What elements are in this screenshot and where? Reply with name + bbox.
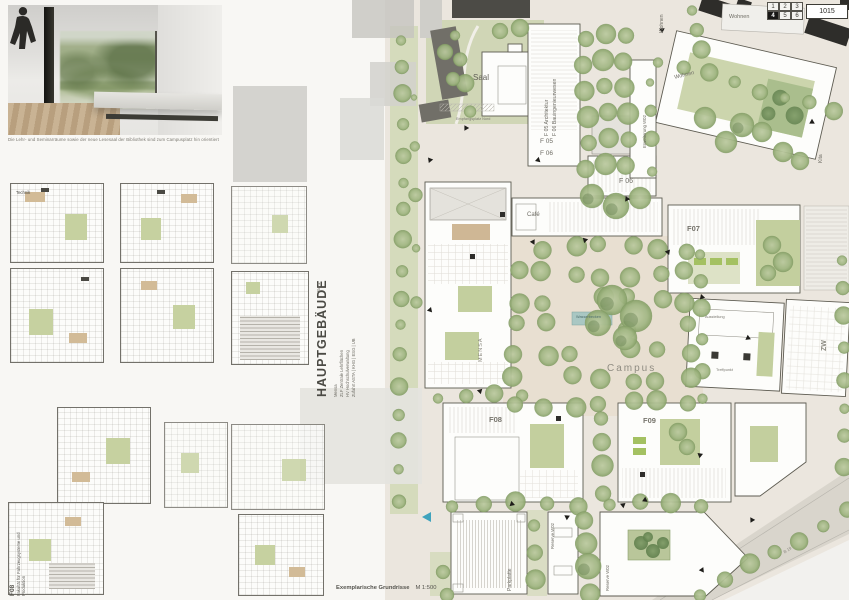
label-f06: F 06 (540, 151, 553, 158)
tree-icon (599, 103, 617, 121)
label-f05-architektur: F 05 Architektur (545, 100, 550, 136)
tree-icon (790, 532, 808, 550)
tree-icon (780, 93, 790, 103)
tree-icon (687, 6, 697, 16)
tree-icon (511, 19, 529, 37)
tree-icon (694, 499, 708, 513)
tree-icon (399, 178, 409, 188)
label-erweiterung-w02: Erweiterung W02 (643, 115, 647, 148)
tree-icon (695, 250, 705, 260)
tree-icon (657, 537, 669, 549)
presentation-board: Die Lehr- und Seminarräume sowie der neu… (0, 0, 849, 600)
render-caption: Die Lehr- und Seminarräume sowie der neu… (8, 137, 222, 142)
tree-icon (763, 236, 781, 254)
bottom-caption-text: Exemplarische Grundrisse (336, 585, 409, 591)
label-hauptgebaeude-phase: BA 1 (317, 282, 322, 292)
tree-icon (682, 344, 700, 362)
tree-icon (791, 152, 809, 170)
floor-plan-thumbnail (231, 424, 325, 510)
label-f07: F07 (687, 225, 700, 233)
tree-icon (693, 41, 711, 59)
tree-icon (593, 433, 611, 451)
floor-plan-thumbnail (120, 183, 214, 263)
f08-annotation: F08 Fakultät für Fahrzeugsysteme und Pro… (9, 514, 27, 596)
tree-icon (453, 53, 467, 67)
tree-icon (577, 160, 595, 178)
tree-icon (509, 315, 525, 331)
tree-icon (459, 389, 473, 403)
tree-icon (592, 49, 614, 71)
legend-cell: 6 (791, 11, 803, 20)
tree-icon (733, 123, 744, 134)
tree-icon (681, 368, 701, 388)
tree-icon (578, 31, 594, 47)
tree-icon (535, 399, 553, 417)
tree-icon (625, 392, 643, 410)
tree-icon (647, 167, 657, 177)
tree-icon (409, 188, 423, 202)
tree-icon (476, 496, 492, 512)
tree-icon (773, 252, 793, 272)
tree-icon (528, 520, 540, 532)
tree-icon (437, 44, 453, 60)
tree-icon (614, 78, 634, 98)
tree-icon (620, 267, 640, 287)
tree-icon (616, 336, 627, 347)
tree-icon (574, 56, 592, 74)
tree-icon (446, 501, 458, 513)
tree-icon (646, 79, 654, 87)
label-wohnen-top: Wohnen (729, 15, 749, 21)
tree-icon (621, 132, 637, 148)
label-reserve-w02-b: Reserve W02 (606, 565, 610, 591)
tree-icon (837, 256, 847, 266)
tree-icon (534, 241, 552, 259)
tree-icon (592, 455, 614, 477)
tree-icon (396, 36, 406, 46)
tree-icon (391, 432, 407, 448)
tree-icon (540, 497, 554, 511)
tree-icon (539, 346, 559, 366)
tree-icon (537, 313, 555, 331)
tree-icon (577, 106, 599, 128)
legend-cell: 3 (791, 2, 803, 11)
tree-icon (675, 262, 693, 280)
label-f06-block: F 06 (619, 178, 633, 185)
floor-plan-thumbnail (231, 186, 307, 264)
tree-icon (534, 296, 550, 312)
label-technik: Technik (16, 191, 30, 195)
tree-icon (760, 265, 776, 281)
label-parkplatte: Parkplatte (508, 568, 513, 591)
render-table (94, 92, 222, 111)
tree-icon (588, 320, 600, 332)
tree-icon (410, 141, 420, 151)
label-campus: Campus (607, 364, 656, 374)
tree-icon (590, 236, 606, 252)
tree-icon (397, 118, 409, 130)
interior-rendering (8, 5, 222, 135)
tree-icon (802, 95, 816, 109)
label-hauptgebaeude-line: ZLF Zentrale Lehrflächen (340, 350, 344, 397)
tree-icon (394, 230, 412, 248)
page-index: 123456 1015 (767, 2, 848, 20)
label-mensa: MENSA (479, 337, 485, 362)
tree-icon (507, 397, 523, 413)
person-silhouette (8, 5, 38, 51)
tree-icon (562, 346, 578, 362)
tree-icon (661, 493, 681, 513)
tree-icon (596, 24, 616, 44)
tree-icon (696, 333, 708, 345)
label-cafe: Café (527, 212, 540, 218)
tree-icon (680, 316, 696, 332)
tree-icon (653, 58, 663, 68)
f08-code: F08 (9, 514, 16, 596)
label-hauptgebaeude-line: Mensa (334, 384, 338, 397)
tree-icon (817, 520, 829, 532)
tree-icon (510, 294, 530, 314)
tree-icon (595, 153, 617, 175)
tree-icon (393, 409, 405, 421)
tree-icon (575, 512, 593, 530)
tree-icon (646, 372, 664, 390)
tree-icon (599, 128, 619, 148)
tree-icon (623, 313, 638, 328)
tree-icon (836, 281, 849, 295)
legend-cell: 1 (767, 2, 779, 11)
tree-icon (581, 135, 597, 151)
label-f06-bauingenieurwesen: F 06 Bauingenieurwesen (553, 79, 558, 136)
label-wasserbecken: Wasserbecken (576, 316, 601, 320)
tree-icon (694, 274, 708, 288)
tree-icon (502, 367, 522, 387)
tree-icon (629, 187, 651, 209)
tree-icon (679, 439, 695, 455)
label-ausstellung: Ausstellung (705, 316, 725, 320)
tree-icon (606, 203, 618, 215)
tree-icon (838, 342, 849, 354)
legend-cell: 4 (767, 11, 779, 20)
tree-icon (440, 588, 454, 600)
floor-plan-thumbnail (238, 514, 324, 596)
tree-icon (594, 412, 608, 426)
tree-icon (527, 545, 543, 561)
label-f05: F 05 (540, 139, 553, 146)
legend-cell: 2 (779, 2, 791, 11)
tree-icon (752, 84, 768, 100)
tree-icon (392, 495, 406, 509)
label-reserve-w02-a: Reserve W02 (551, 523, 555, 549)
tree-icon (390, 378, 408, 396)
tree-icon (393, 347, 407, 361)
tree-icon (679, 244, 695, 260)
tree-icon (729, 76, 741, 88)
tree-icon (492, 23, 508, 39)
tree-icon (653, 266, 669, 282)
tree-icon (618, 28, 634, 44)
tree-icon (591, 269, 609, 287)
tree-icon (433, 394, 443, 404)
label-wohnen-street: Wohnen (660, 14, 665, 33)
tree-icon (412, 244, 420, 252)
tree-icon (690, 23, 704, 37)
tree-icon (674, 293, 694, 313)
tree-icon (464, 106, 476, 118)
floor-plan-thumbnail (120, 268, 214, 363)
label-treffpunkt: Treffpunkt (716, 369, 733, 373)
tree-icon (825, 102, 843, 120)
tree-icon (740, 554, 760, 574)
tree-icon (717, 572, 733, 588)
tree-icon (768, 545, 782, 559)
label-empfangsplatz: Empfangsplatz Nord (456, 118, 490, 122)
tree-icon (564, 366, 582, 384)
tree-icon (643, 532, 653, 542)
tree-icon (654, 290, 672, 308)
tree-icon (526, 570, 546, 590)
tree-icon (395, 148, 411, 164)
tree-icon (617, 157, 635, 175)
tree-icon (510, 261, 528, 279)
floor-plan-thumbnail (57, 407, 151, 504)
label-f09: F09 (643, 417, 656, 425)
tree-icon (614, 53, 632, 71)
tree-icon (583, 194, 594, 205)
tree-icon (396, 265, 408, 277)
tree-icon (625, 236, 643, 254)
legend-cell: 5 (779, 11, 791, 20)
label-hauptgebaeude-line: HV Hochschulverwaltung (346, 350, 350, 397)
tree-icon (590, 396, 606, 412)
page-index-grid: 123456 (767, 2, 803, 20)
floor-plan-thumbnail (231, 271, 309, 365)
label-kita: Kita (819, 154, 824, 163)
tree-icon (394, 84, 412, 102)
tree-icon (752, 122, 772, 142)
tree-icon (700, 63, 718, 81)
tree-icon (840, 404, 849, 414)
tree-icon (566, 397, 586, 417)
tree-icon (411, 95, 417, 101)
tree-icon (395, 60, 409, 74)
tree-icon (680, 395, 696, 411)
label-hauptgebaeude: HAUPTGEBÄUDE (316, 279, 329, 397)
tree-icon (436, 565, 450, 579)
tree-icon (394, 464, 404, 474)
tree-icon (410, 296, 422, 308)
tree-icon (393, 291, 409, 307)
tree-icon (600, 297, 614, 311)
tree-icon (694, 107, 716, 129)
tree-icon (669, 423, 687, 441)
tree-icon (715, 131, 737, 153)
bottom-caption: Exemplarische GrundrisseM 1:500 (336, 585, 436, 591)
label-hauptgebaeude-line: Zufahrt ASTA | KHG | ESG | UB (352, 338, 356, 397)
tree-icon (396, 202, 410, 216)
bottom-caption-scale: M 1:500 (415, 585, 436, 591)
tree-icon (450, 31, 460, 41)
tree-icon (773, 142, 793, 162)
tree-icon (626, 374, 642, 390)
label-f08: F08 (489, 416, 502, 424)
tree-icon (578, 564, 590, 576)
label-zw: ZW (821, 340, 828, 351)
tree-icon (595, 486, 611, 502)
entry-number: 1015 (806, 4, 848, 19)
tree-icon (506, 492, 526, 512)
tree-icon (575, 533, 597, 555)
tree-icon (649, 342, 665, 358)
f08-name: Fakultät für Fahrzeugsysteme und Produkt… (16, 514, 27, 596)
tree-icon (396, 320, 406, 330)
tree-icon (648, 239, 668, 259)
label-saal: Saal (473, 74, 489, 82)
tree-icon (531, 261, 551, 281)
tree-icon (694, 590, 706, 600)
tree-icon (596, 78, 612, 94)
tree-icon (574, 81, 594, 101)
tree-icon (485, 385, 503, 403)
tree-icon (446, 72, 460, 86)
tree-icon (617, 103, 639, 125)
floor-plan-thumbnail (10, 268, 104, 363)
tree-icon (698, 394, 708, 404)
floor-plan-thumbnail (164, 422, 228, 508)
tree-icon (504, 345, 522, 363)
tree-icon (647, 390, 667, 410)
tree-icon (569, 267, 585, 283)
